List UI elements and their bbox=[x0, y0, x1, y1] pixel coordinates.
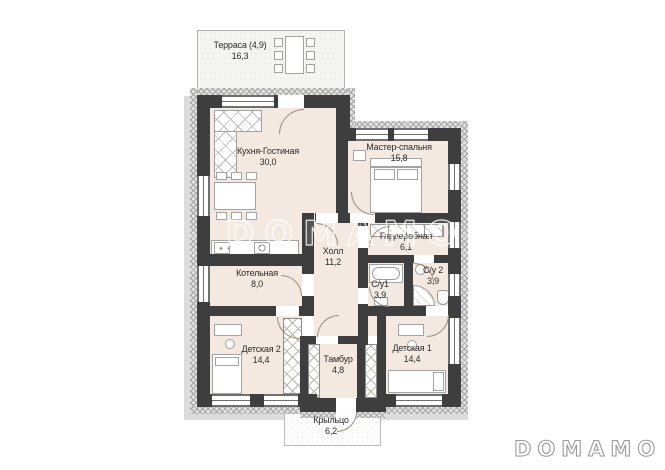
insulation-strip bbox=[354, 121, 461, 128]
room-name: С/у1 bbox=[371, 279, 389, 289]
wall bbox=[197, 95, 210, 407]
room-name: С/у 2 bbox=[423, 265, 443, 275]
insulation-strip bbox=[190, 88, 197, 414]
door-opening bbox=[414, 255, 434, 263]
room-area: 15,8 bbox=[366, 153, 432, 164]
pillow bbox=[433, 372, 444, 391]
room-area: 3,9 bbox=[371, 290, 389, 301]
terrace-chair bbox=[274, 38, 283, 47]
closet bbox=[365, 344, 377, 398]
room-label-terrace: Терраса (4,9) 16,3 bbox=[214, 40, 267, 62]
room-name: Котельная bbox=[236, 268, 278, 278]
room-area: 8,0 bbox=[236, 279, 278, 290]
room-name: Мастер-спальня bbox=[366, 142, 432, 152]
insulation-strip bbox=[190, 88, 354, 95]
door-opening bbox=[358, 288, 368, 304]
corner-sofa bbox=[214, 131, 237, 178]
window bbox=[394, 128, 428, 141]
room-area: 16,3 bbox=[214, 51, 267, 62]
room-label-kitchen-living: Кухня-Гостиная 30,0 bbox=[237, 146, 299, 168]
window bbox=[448, 318, 461, 364]
room-label-vestibule: Тамбур 4,8 bbox=[323, 354, 352, 376]
pillow bbox=[397, 169, 418, 180]
pillow bbox=[215, 357, 239, 366]
room-name: Кухня-Гостиная bbox=[237, 146, 299, 156]
closet bbox=[308, 344, 320, 398]
dining-chair bbox=[216, 172, 227, 180]
room-label-master-bedroom: Мастер-спальня 15,8 bbox=[366, 142, 432, 164]
window bbox=[448, 274, 461, 296]
dining-chair bbox=[246, 172, 257, 180]
room-name: Тамбур bbox=[323, 354, 352, 364]
door-opening bbox=[278, 95, 304, 108]
room-area: 6,2 bbox=[313, 426, 348, 437]
insulation-strip bbox=[356, 412, 386, 418]
wall bbox=[210, 254, 310, 266]
room-label-porch: Крыльцо 6,2 bbox=[313, 415, 348, 437]
wall bbox=[336, 108, 348, 222]
dining-table bbox=[214, 182, 256, 210]
wall bbox=[377, 306, 386, 412]
room-name: Детская 1 bbox=[392, 343, 431, 353]
room-label-kids1: Детская 1 14,4 bbox=[392, 343, 431, 365]
room-area: 14,4 bbox=[241, 355, 280, 366]
door-opening bbox=[316, 336, 338, 344]
room-area: 11,2 bbox=[323, 257, 343, 268]
desk-chair bbox=[225, 339, 235, 349]
insulation-strip bbox=[461, 121, 468, 414]
building-shadow bbox=[379, 414, 468, 420]
window bbox=[356, 128, 388, 141]
window bbox=[396, 394, 442, 407]
terrace-chair bbox=[306, 38, 315, 47]
pillow bbox=[374, 169, 395, 180]
nightstand bbox=[353, 150, 366, 161]
room-label-bath1: С/у1 3,9 bbox=[371, 279, 389, 301]
center-watermark: DOMAMO bbox=[226, 214, 466, 254]
building-shadow bbox=[184, 414, 300, 420]
door-opening bbox=[276, 306, 299, 316]
door-opening bbox=[302, 274, 314, 296]
terrace-chair bbox=[306, 51, 315, 60]
room-area: 14,4 bbox=[392, 354, 431, 365]
desk bbox=[214, 324, 242, 336]
room-area: 30,0 bbox=[237, 157, 299, 168]
wall bbox=[356, 398, 386, 412]
terrace-chair bbox=[306, 64, 315, 73]
window bbox=[448, 164, 461, 190]
room-label-kids2: Детская 2 14,4 bbox=[241, 344, 280, 366]
room-area: 3,9 bbox=[423, 276, 443, 287]
insulation-strip bbox=[383, 407, 468, 414]
window bbox=[212, 394, 250, 407]
room-label-boiler: Котельная 8,0 bbox=[236, 268, 278, 290]
room-area: 4,8 bbox=[323, 365, 352, 376]
brand-logo: DOMAMO bbox=[514, 437, 661, 461]
terrace-chair bbox=[274, 64, 283, 73]
room-name: Детская 2 bbox=[241, 344, 280, 354]
room-name: Терраса (4,9) bbox=[214, 40, 267, 50]
insulation-strip bbox=[190, 407, 317, 414]
room-label-bath2: С/у 2 3,9 bbox=[423, 265, 443, 287]
window bbox=[197, 176, 210, 216]
terrace-chair bbox=[274, 51, 283, 60]
window bbox=[264, 394, 298, 407]
desk bbox=[398, 324, 424, 336]
corner-sofa bbox=[214, 110, 262, 132]
wall bbox=[300, 398, 336, 412]
dining-chair bbox=[231, 172, 242, 180]
terrace-table bbox=[285, 36, 304, 74]
window bbox=[222, 95, 274, 108]
door-opening bbox=[336, 398, 356, 412]
room-name: Крыльцо bbox=[313, 415, 348, 425]
floor-plan: Терраса (4,9) 16,3 Кухня-Гостиная 30,0 М… bbox=[0, 0, 665, 470]
window bbox=[197, 266, 210, 302]
